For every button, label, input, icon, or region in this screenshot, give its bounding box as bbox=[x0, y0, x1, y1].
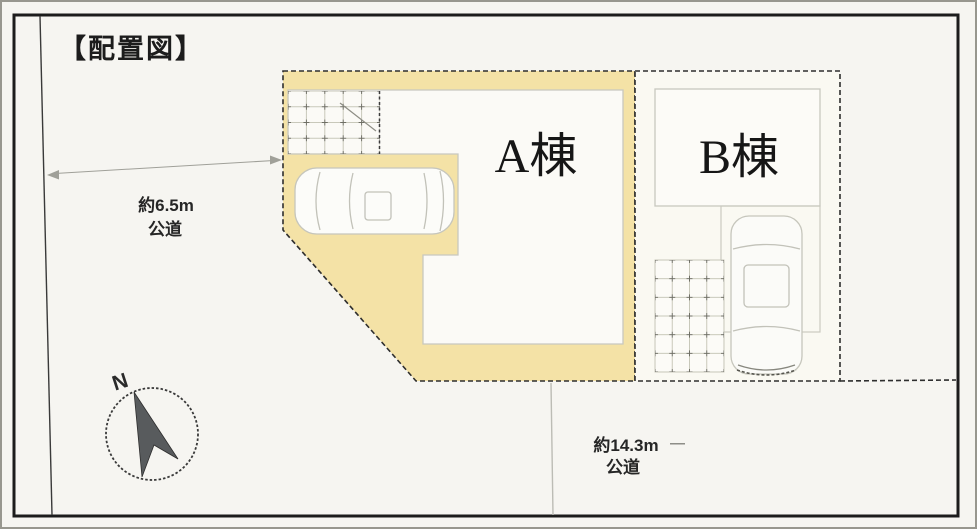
car-a-icon bbox=[295, 168, 454, 234]
north-label: N bbox=[109, 369, 131, 396]
road-width-dimension-arrow bbox=[47, 156, 282, 180]
compass-needle-icon bbox=[134, 392, 178, 477]
south-road-width-label: 約14.3m bbox=[593, 435, 658, 455]
page-title: 【配置図】 bbox=[59, 34, 204, 64]
building-b-entrance-tiles bbox=[655, 260, 724, 372]
road-divider-line bbox=[551, 383, 553, 515]
building-b-label: B棟 bbox=[699, 131, 779, 184]
south-road-type-label: 公道 bbox=[606, 457, 640, 477]
car-b-icon bbox=[731, 216, 802, 375]
building-a-label: A棟 bbox=[495, 130, 578, 183]
site-plan-drawing: N 【配置図】 A棟 B棟 約6.5m 公道 約14.3m ― 公道 bbox=[2, 2, 977, 529]
scanned-site-plan: N 【配置図】 A棟 B棟 約6.5m 公道 約14.3m ― 公道 bbox=[0, 0, 977, 529]
west-road-width-label: 約6.5m bbox=[138, 195, 194, 215]
south-road-boundary-line bbox=[840, 380, 956, 381]
west-road-type-label: 公道 bbox=[148, 219, 182, 239]
building-a-entrance-tiles bbox=[288, 91, 380, 154]
north-compass: N bbox=[106, 369, 198, 480]
south-road-dash: ― bbox=[670, 435, 685, 452]
west-road-boundary-line bbox=[40, 16, 52, 515]
